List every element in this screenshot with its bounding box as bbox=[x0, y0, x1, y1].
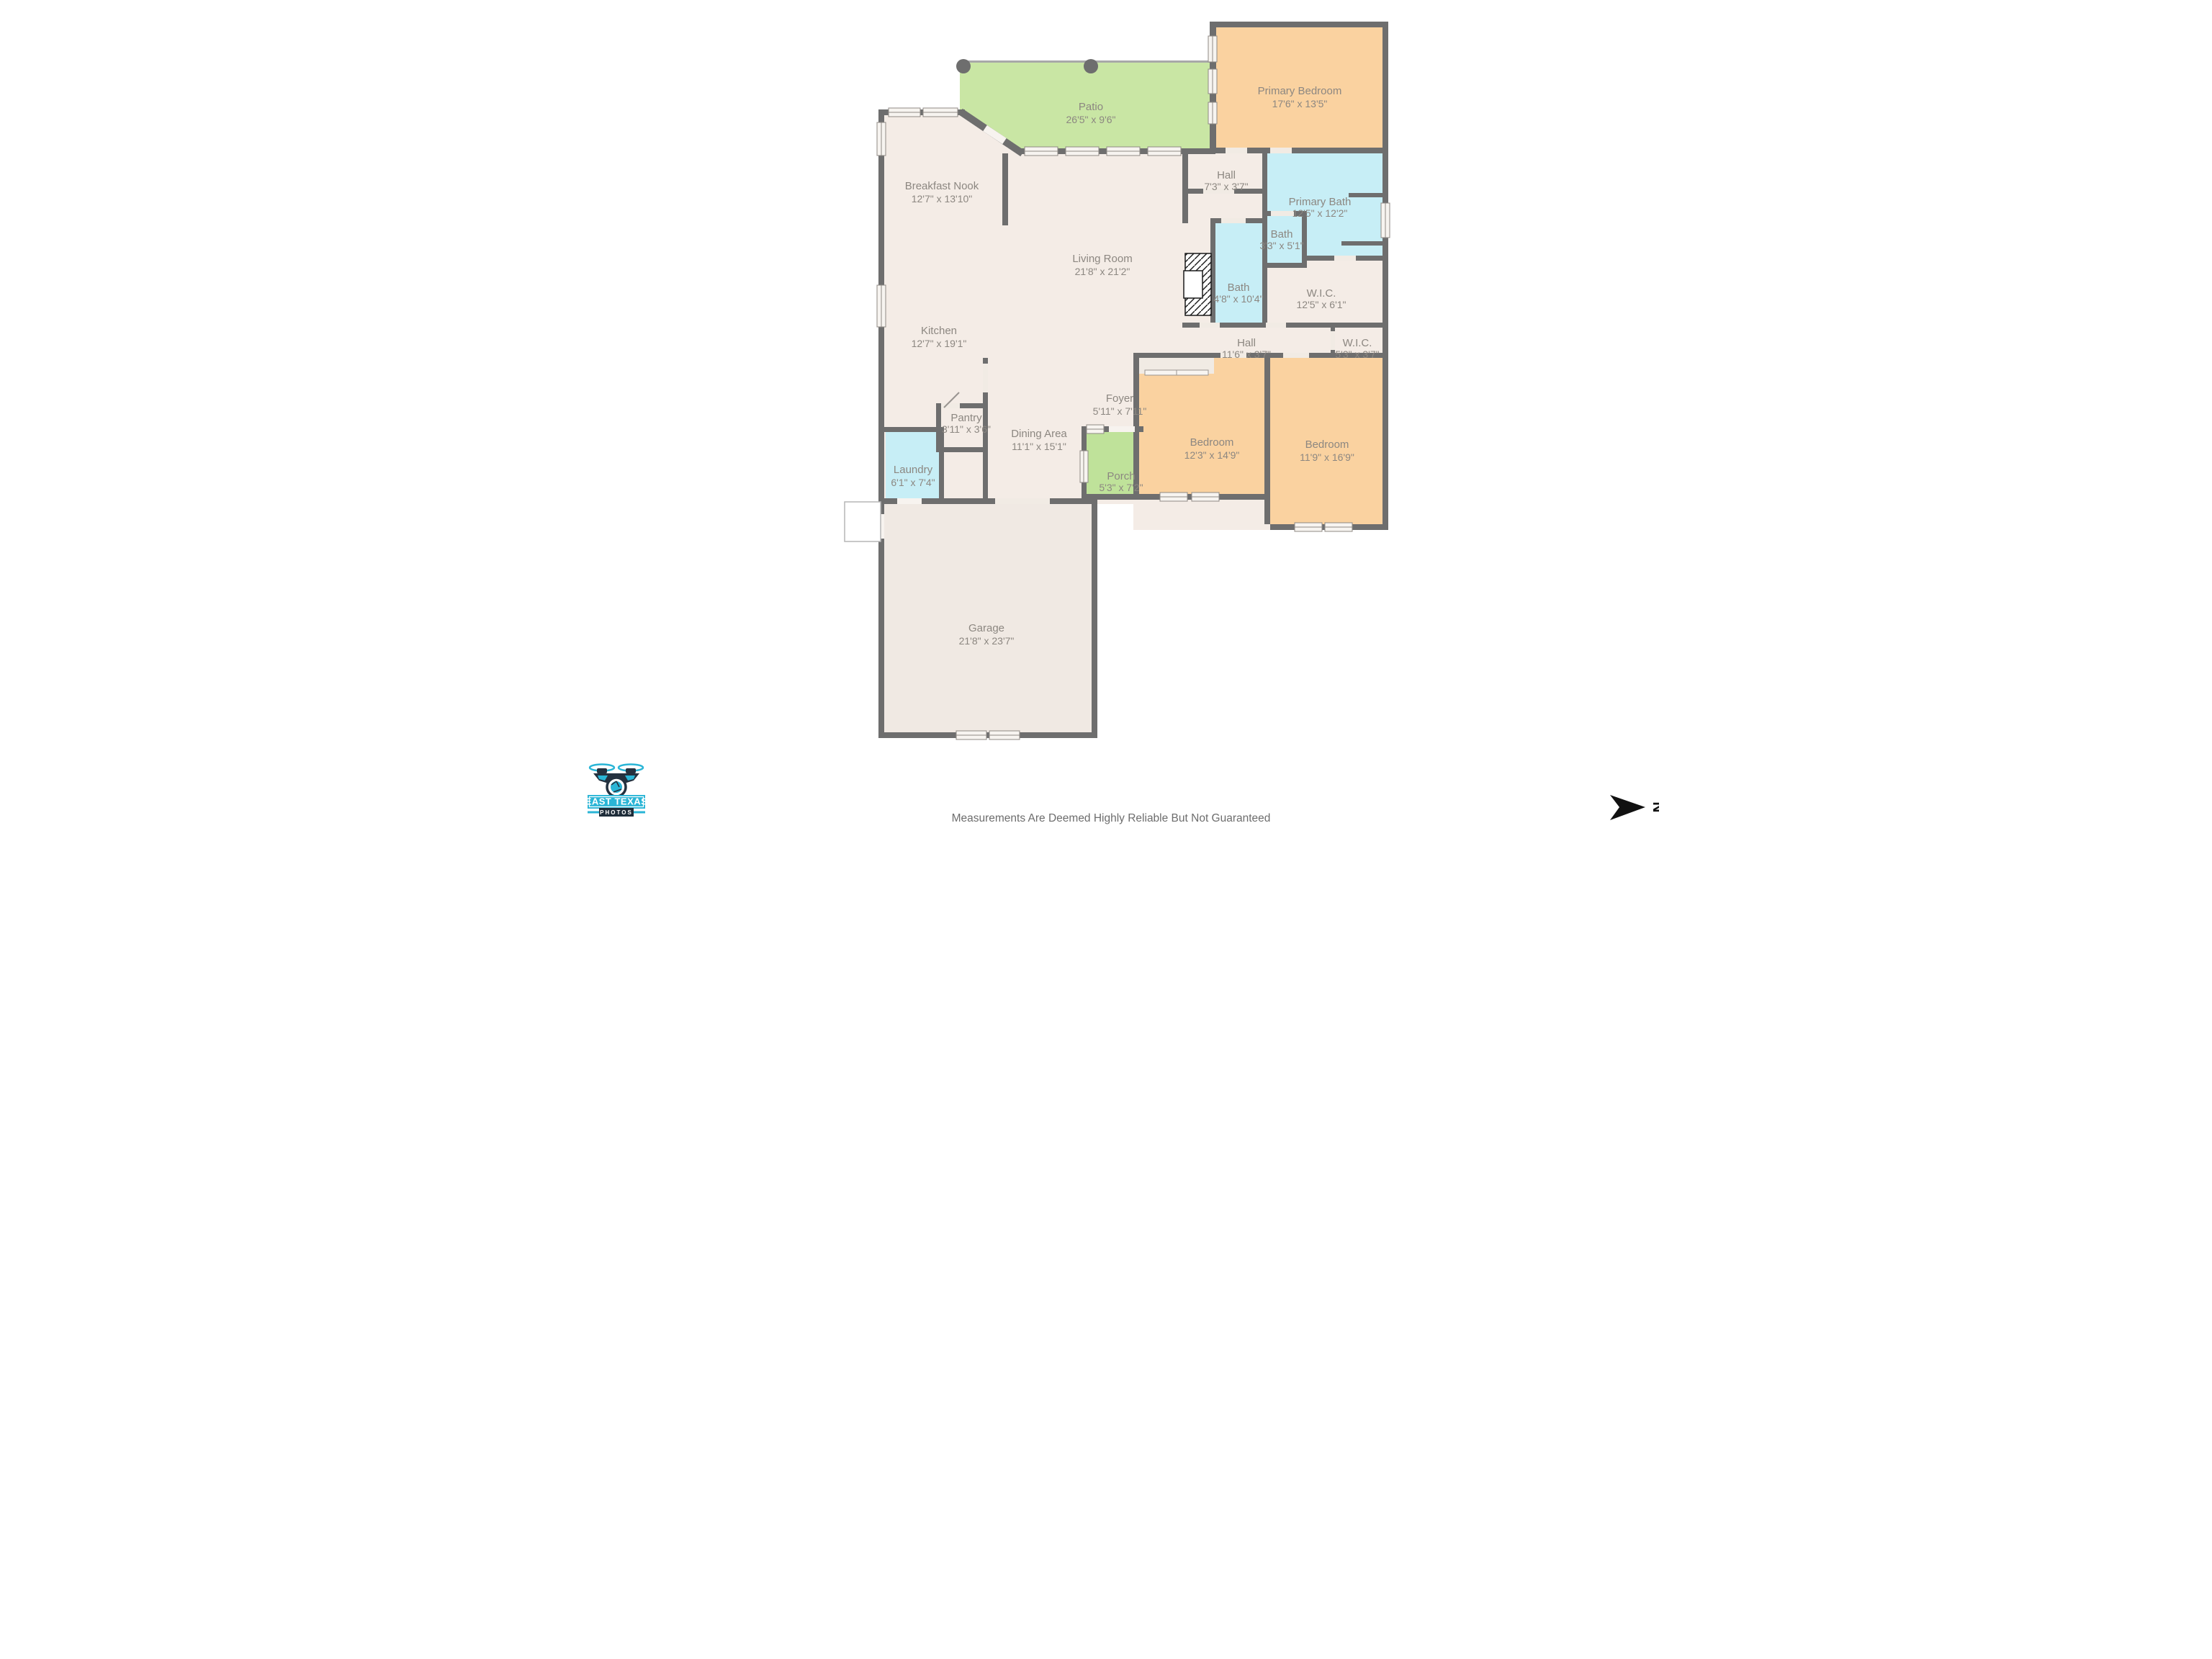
floor-plan-svg: Patio 26'5" x 9'6" Primary Bedroom 17'6"… bbox=[553, 0, 1659, 829]
logo-text-line1: EAST TEXAS bbox=[585, 796, 648, 807]
bath-small-label: Bath bbox=[1271, 228, 1293, 240]
hall-upper-dims: 7'3" x 3'7" bbox=[1204, 181, 1248, 192]
wall bbox=[939, 427, 944, 498]
patio-edge-line bbox=[960, 60, 1210, 63]
north-arrow-icon bbox=[1610, 795, 1645, 820]
dining-dims: 11'1" x 15'1" bbox=[1012, 441, 1066, 452]
logo-text-line2: PHOTOS bbox=[600, 809, 633, 816]
porch-dims: 5'3" x 7'2" bbox=[1099, 482, 1143, 493]
garage-label: Garage bbox=[968, 622, 1004, 634]
wall-shower-stub bbox=[1341, 241, 1382, 246]
living-room-label: Living Room bbox=[1072, 253, 1132, 265]
pantry-label: Pantry bbox=[950, 412, 982, 424]
wall bbox=[1262, 153, 1267, 194]
wall bbox=[1092, 494, 1097, 738]
front-door-opening bbox=[1109, 426, 1135, 432]
wic-primary-dims: 12'5" x 6'1" bbox=[1297, 299, 1346, 310]
floor-plan-page: Patio 26'5" x 9'6" Primary Bedroom 17'6"… bbox=[553, 0, 1659, 829]
bedroom-right-dims: 11'9" x 16'9" bbox=[1300, 451, 1354, 463]
fireplace bbox=[1184, 253, 1211, 315]
disclaimer-text: Measurements Are Deemed Highly Reliable … bbox=[952, 812, 1271, 824]
primary-bedroom-label: Primary Bedroom bbox=[1258, 85, 1342, 97]
door-opening bbox=[1331, 331, 1335, 350]
door-opening bbox=[1266, 323, 1286, 328]
door-opening bbox=[1334, 256, 1356, 261]
bedroom-left-floor bbox=[1139, 358, 1264, 494]
door-opening bbox=[1226, 148, 1247, 153]
north-arrow: N bbox=[1610, 795, 1659, 820]
bath-hall-floor bbox=[1215, 223, 1262, 323]
garage-entry-opening bbox=[995, 498, 1050, 504]
hall-lower-dims: 11'6" x 3'7" bbox=[1222, 349, 1271, 360]
kitchen-label: Kitchen bbox=[921, 325, 957, 337]
east-texas-photos-logo: EAST TEXAS PHOTOS bbox=[585, 765, 648, 817]
primary-bath-label: Primary Bath bbox=[1289, 196, 1352, 208]
door-opening bbox=[983, 364, 988, 392]
fireplace-firebox bbox=[1184, 271, 1202, 298]
wall bbox=[1382, 22, 1388, 153]
wall bbox=[878, 732, 1097, 738]
porch-label: Porch bbox=[1107, 470, 1135, 482]
wic-small-dims: 5'3" x 3'7" bbox=[1335, 349, 1379, 360]
foyer-dims: 5'11" x 7'11" bbox=[1093, 405, 1147, 417]
door-opening bbox=[941, 403, 960, 408]
bedroom-right-label: Bedroom bbox=[1305, 439, 1349, 451]
hall-upper-label: Hall bbox=[1217, 169, 1236, 181]
door-opening bbox=[1200, 323, 1220, 328]
patio-label: Patio bbox=[1079, 101, 1103, 113]
drone-motor-icon bbox=[597, 768, 607, 773]
wall bbox=[1210, 22, 1388, 27]
drone-motor-icon bbox=[626, 768, 636, 773]
door-opening bbox=[1271, 211, 1294, 216]
bath-hall-label: Bath bbox=[1228, 282, 1250, 294]
dining-label: Dining Area bbox=[1011, 428, 1067, 440]
wic-primary-label: W.I.C. bbox=[1307, 287, 1336, 300]
patio-post-icon bbox=[1084, 59, 1098, 73]
living-room-dims: 21'8" x 21'2" bbox=[1075, 266, 1130, 277]
kitchen-dims: 12'7" x 19'1" bbox=[912, 338, 967, 349]
door-opening bbox=[897, 498, 922, 504]
wic-small-label: W.I.C. bbox=[1343, 337, 1372, 349]
breakfast-nook-label: Breakfast Nook bbox=[905, 180, 979, 192]
wall bbox=[1182, 153, 1188, 223]
bath-small-dims: 3'3" x 5'1" bbox=[1259, 240, 1303, 251]
wall bbox=[1262, 263, 1307, 268]
laundry-dims: 6'1" x 7'4" bbox=[891, 477, 935, 488]
wall-shower-stub bbox=[1349, 193, 1382, 197]
breakfast-nook-dims: 12'7" x 13'10" bbox=[912, 193, 973, 204]
wall bbox=[881, 427, 944, 432]
patio-dims: 26'5" x 9'6" bbox=[1066, 114, 1116, 125]
door-opening bbox=[1221, 218, 1246, 223]
hall-lower-label: Hall bbox=[1237, 337, 1256, 349]
wall bbox=[1262, 189, 1267, 328]
foyer-label: Foyer bbox=[1106, 392, 1133, 405]
bedroom-left-label: Bedroom bbox=[1190, 436, 1234, 449]
door-opening bbox=[1270, 148, 1292, 153]
patio-post-icon bbox=[956, 59, 971, 73]
pantry-dims: 3'11" x 3'6" bbox=[942, 423, 991, 435]
bedroom-left-dims: 12'3" x 14'9" bbox=[1184, 449, 1240, 461]
primary-bath-dims: 12'5" x 12'2" bbox=[1292, 207, 1348, 219]
primary-bedroom-dims: 17'6" x 13'5" bbox=[1272, 98, 1328, 109]
stoop bbox=[845, 502, 881, 541]
laundry-label: Laundry bbox=[894, 464, 933, 476]
garage-dims: 21'8" x 23'7" bbox=[959, 635, 1015, 647]
door-opening bbox=[1283, 353, 1309, 358]
garage-floor bbox=[884, 504, 1092, 732]
north-label: N bbox=[1650, 801, 1659, 812]
bath-hall-dims: 4'8" x 10'4" bbox=[1214, 293, 1264, 305]
wall bbox=[1002, 153, 1008, 225]
